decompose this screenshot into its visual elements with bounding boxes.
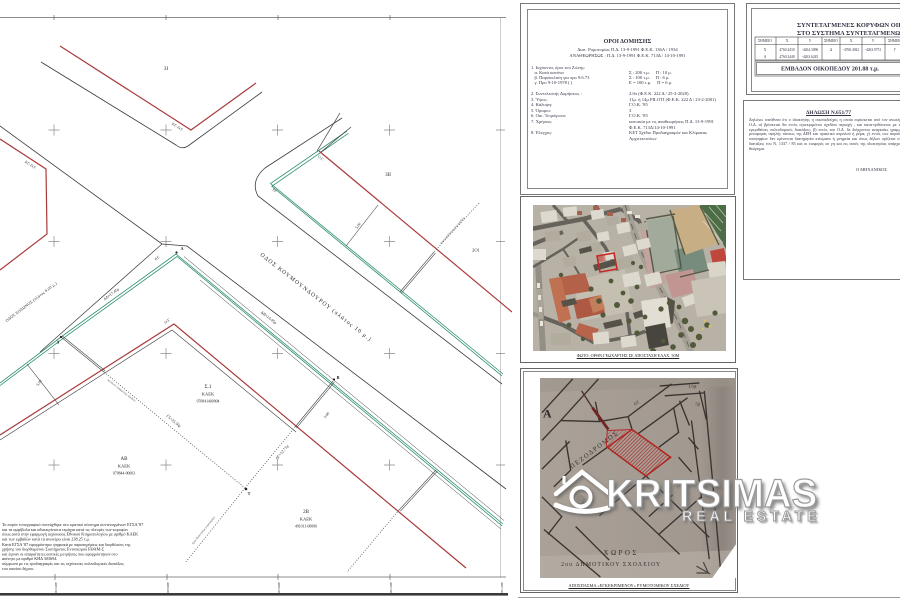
svg-text:5β: 5β bbox=[695, 402, 700, 407]
svg-text:1/1β: 1/1β bbox=[688, 384, 697, 389]
svg-text:4760.4430: 4760.4430 bbox=[779, 48, 794, 52]
svg-text:ΑΒ: ΑΒ bbox=[121, 457, 129, 462]
svg-text:4497.50: 4497.50 bbox=[500, 582, 504, 593]
svg-text:ΚΑΕΚ: ΚΑΕΚ bbox=[118, 464, 131, 469]
svg-text:4496.00: 4496.00 bbox=[166, 582, 170, 593]
svg-text:3ΙΙ: 3ΙΙ bbox=[385, 173, 391, 178]
svg-text:-4263.9751: -4263.9751 bbox=[865, 48, 882, 52]
svg-text:ΔΓ=12.71μ: ΔΓ=12.71μ bbox=[274, 443, 290, 460]
svg-text:πρόσωπο εφαρμογής σχεδίου: πρόσωπο εφαρμογής σχεδίου bbox=[106, 378, 137, 403]
svg-text:Ρ.Γ.: Ρ.Γ. bbox=[154, 255, 161, 262]
svg-text:2Β: 2Β bbox=[303, 510, 310, 515]
svg-text:Α: Α bbox=[180, 246, 183, 251]
svg-text:4495.50: 4495.50 bbox=[54, 582, 58, 593]
svg-text:ΔΒ=14.45μ: ΔΒ=14.45μ bbox=[260, 310, 278, 325]
svg-text:ΚΑΕΚ: ΚΑΕΚ bbox=[300, 517, 313, 522]
svg-text:Ο.Γ.: Ο.Γ. bbox=[317, 155, 325, 162]
svg-text:ΧΩΡΟΣ: ΧΩΡΟΣ bbox=[603, 550, 638, 557]
svg-text:ΕΜΒΑΔΟΝ ΟΙΚΟΠΕΔΟΥ 201.88 τ.μ.: ΕΜΒΑΔΟΝ ΟΙΚΟΠΕΔΟΥ 201.88 τ.μ. bbox=[781, 67, 879, 73]
svg-text:ΣΗΜΕΙΟ: ΣΗΜΕΙΟ bbox=[888, 39, 900, 43]
svg-text:όριο ιδιοκτησίας ρυμοτομίας: όριο ιδιοκτησίας ρυμοτομίας bbox=[191, 515, 217, 545]
svg-text:Χ: Χ bbox=[850, 39, 853, 43]
svg-text:όριο απαλλοτρίωσης σχεδίου: όριο απαλλοτρίωσης σχεδίου bbox=[439, 216, 466, 245]
svg-text:-4263.6245: -4263.6245 bbox=[802, 55, 819, 59]
svg-text:5.00: 5.00 bbox=[323, 411, 330, 419]
svg-text:ΚΑΕΚ: ΚΑΕΚ bbox=[202, 392, 215, 397]
svg-text:ΟΔΟΣ ΚΟΥΜΟΥΝΔΟΥΡΟΥ (πλάτος 10: ΟΔΟΣ ΚΟΥΜΟΥΝΔΟΥΡΟΥ (πλάτος 10 μ.) bbox=[259, 251, 374, 343]
svg-text:Ο.Γ.: Ο.Γ. bbox=[164, 317, 172, 324]
svg-text:Ρ.Γ.-Ο.Γ.: Ρ.Γ.-Ο.Γ. bbox=[171, 122, 184, 133]
svg-text:Α: Α bbox=[764, 55, 767, 59]
svg-text:Υ: Υ bbox=[809, 39, 812, 43]
svg-text:Σ.1: Σ.1 bbox=[205, 385, 212, 390]
svg-text:Χ: Χ bbox=[764, 48, 767, 52]
svg-text:ΟΔΟΣ ΣΟΛΩΝΟΣ (πλάτος 8.00 μ.): ΟΔΟΣ ΣΟΛΩΝΟΣ (πλάτος 8.00 μ.) bbox=[4, 280, 58, 322]
svg-text:Υ: Υ bbox=[872, 39, 875, 43]
svg-text:Α: Α bbox=[543, 407, 552, 421]
svg-text:070844-00003: 070844-00003 bbox=[113, 472, 135, 476]
svg-text:Τ: Τ bbox=[248, 491, 251, 496]
svg-text:-4264.3096: -4264.3096 bbox=[802, 48, 819, 52]
svg-text:-4760.4941: -4760.4941 bbox=[843, 48, 860, 52]
svg-text:3Ι: 3Ι bbox=[164, 67, 169, 72]
svg-text:Δ: Δ bbox=[57, 340, 60, 345]
svg-text:2Ο1: 2Ο1 bbox=[472, 248, 480, 253]
svg-text:491011-00006: 491011-00006 bbox=[295, 525, 317, 529]
svg-text:Β: Β bbox=[337, 375, 340, 380]
svg-text:Ρ.Γ: Ρ.Γ bbox=[272, 188, 278, 194]
svg-text:Δ: Δ bbox=[830, 48, 833, 52]
svg-text:ΣΗΜΕΙΟ: ΣΗΜΕΙΟ bbox=[758, 39, 772, 43]
svg-text:Γ5=25.50μ: Γ5=25.50μ bbox=[166, 413, 183, 428]
svg-text:ΣΗΜΕΙΟ: ΣΗΜΕΙΟ bbox=[824, 39, 838, 43]
svg-text:4760.2448: 4760.2448 bbox=[779, 55, 794, 59]
svg-text:070841400004: 070841400004 bbox=[197, 400, 220, 404]
svg-text:5.00: 5.00 bbox=[355, 222, 362, 230]
svg-text:του οικείου δήμου.: του οικείου δήμου. bbox=[2, 566, 34, 571]
svg-text:και των εμβαδών κατά τα ανωτέρ: και των εμβαδών κατά τα ανωτέρω είναι 23… bbox=[2, 536, 90, 541]
svg-text:4497.00: 4497.00 bbox=[389, 582, 393, 593]
svg-text:4496.50: 4496.50 bbox=[277, 582, 281, 593]
svg-text:Γ: Γ bbox=[894, 48, 896, 52]
svg-text:2ου ΔΗΜΟΤΙΚΟΥ ΣΧΟΛΕΙΟΥ: 2ου ΔΗΜΟΤΙΚΟΥ ΣΧΟΛΕΙΟΥ bbox=[561, 562, 661, 568]
svg-text:Χ: Χ bbox=[786, 39, 789, 43]
